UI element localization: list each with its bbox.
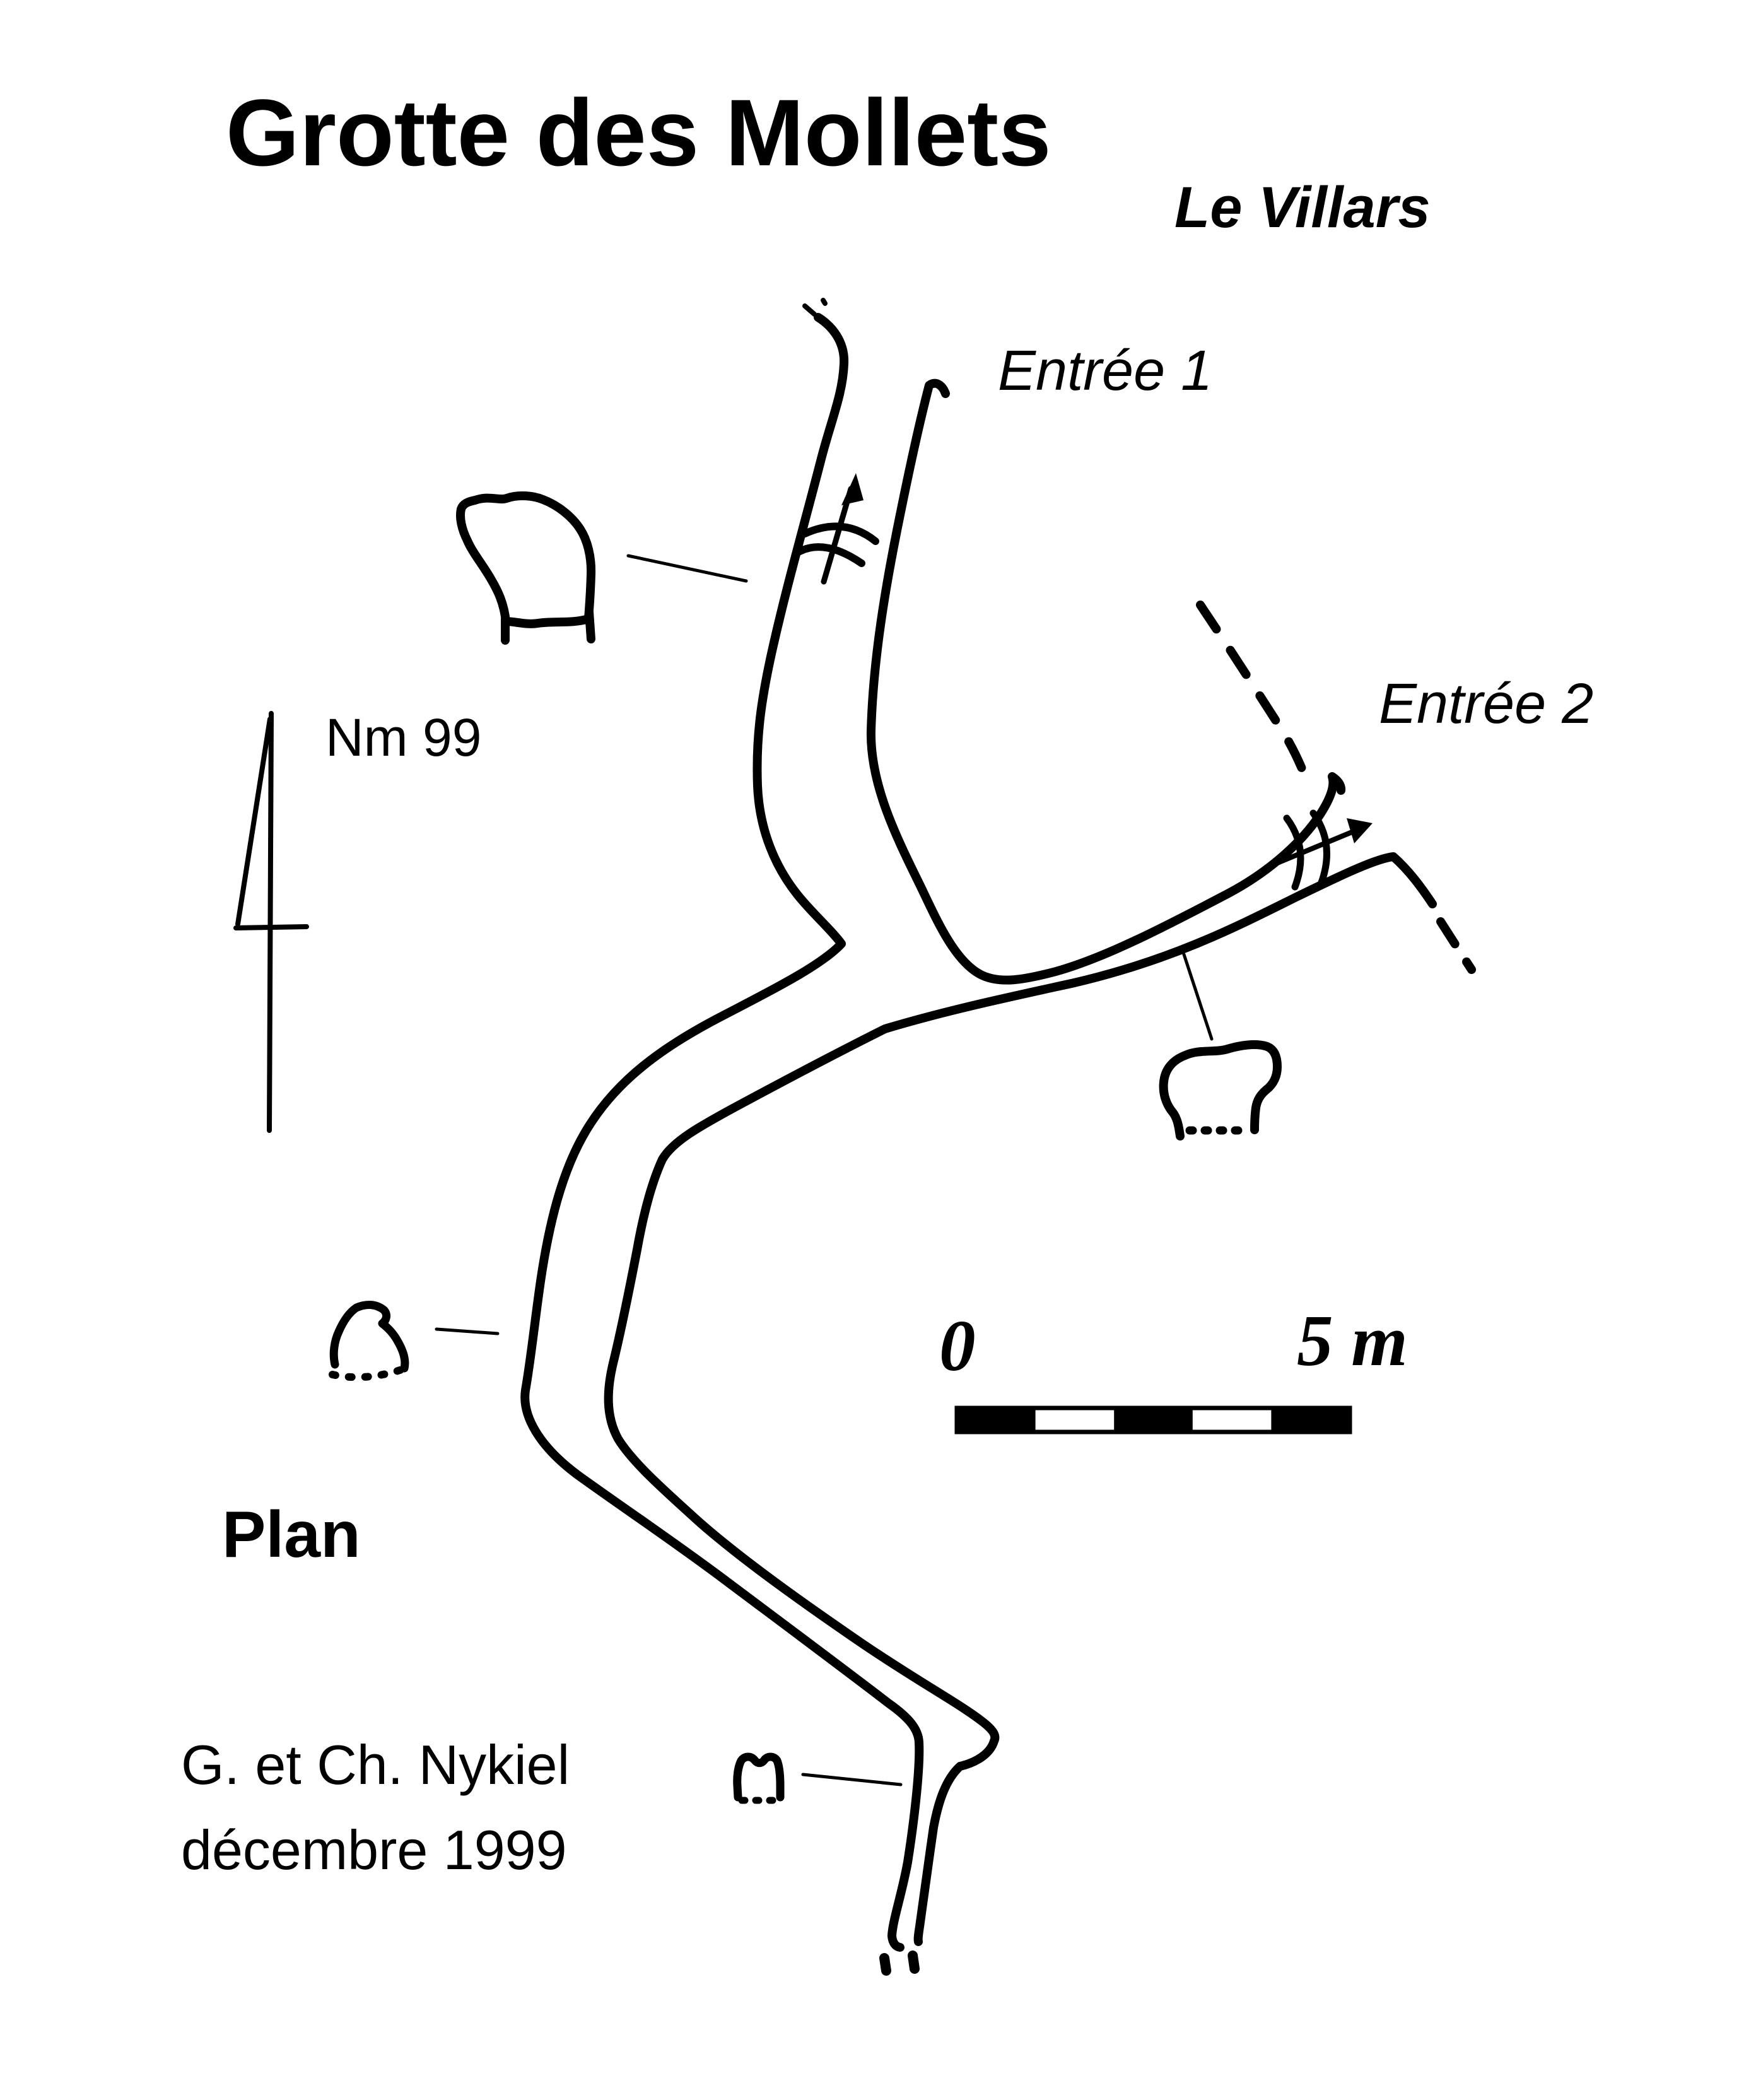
- map-subtitle-location: Le Villars: [1174, 175, 1431, 240]
- credit-date: décembre 1999: [181, 1819, 567, 1881]
- scale-bar-segment: [1271, 1408, 1350, 1432]
- continuation-dot-left: [884, 1958, 886, 1971]
- scale-end-label: 5 m: [1297, 1301, 1408, 1381]
- cross-section-leg: [589, 612, 591, 639]
- entrance1-debris-dot: [823, 300, 825, 303]
- continuation-dot-right: [913, 1956, 915, 1969]
- scale-bar-segment: [957, 1408, 1036, 1432]
- cave-survey-page: Grotte des Mollets Le Villars Entrée 1 E…: [0, 0, 1739, 2100]
- north-reference-label: Nm 99: [325, 708, 481, 767]
- scale-bar-segment: [1114, 1408, 1193, 1432]
- credit-authors: G. et Ch. Nykiel: [181, 1733, 570, 1796]
- cave-map-canvas: Grotte des Mollets Le Villars Entrée 1 E…: [0, 0, 1739, 2100]
- map-title: Grotte des Mollets: [226, 79, 1051, 185]
- north-arrow-crossbar: [236, 927, 307, 928]
- view-type-label: Plan: [222, 1498, 361, 1571]
- entrance1-label: Entrée 1: [998, 339, 1212, 402]
- scale-start-label: 0: [939, 1306, 976, 1386]
- entrance2-label: Entrée 2: [1379, 672, 1593, 736]
- north-arrow-shaft: [269, 713, 271, 1130]
